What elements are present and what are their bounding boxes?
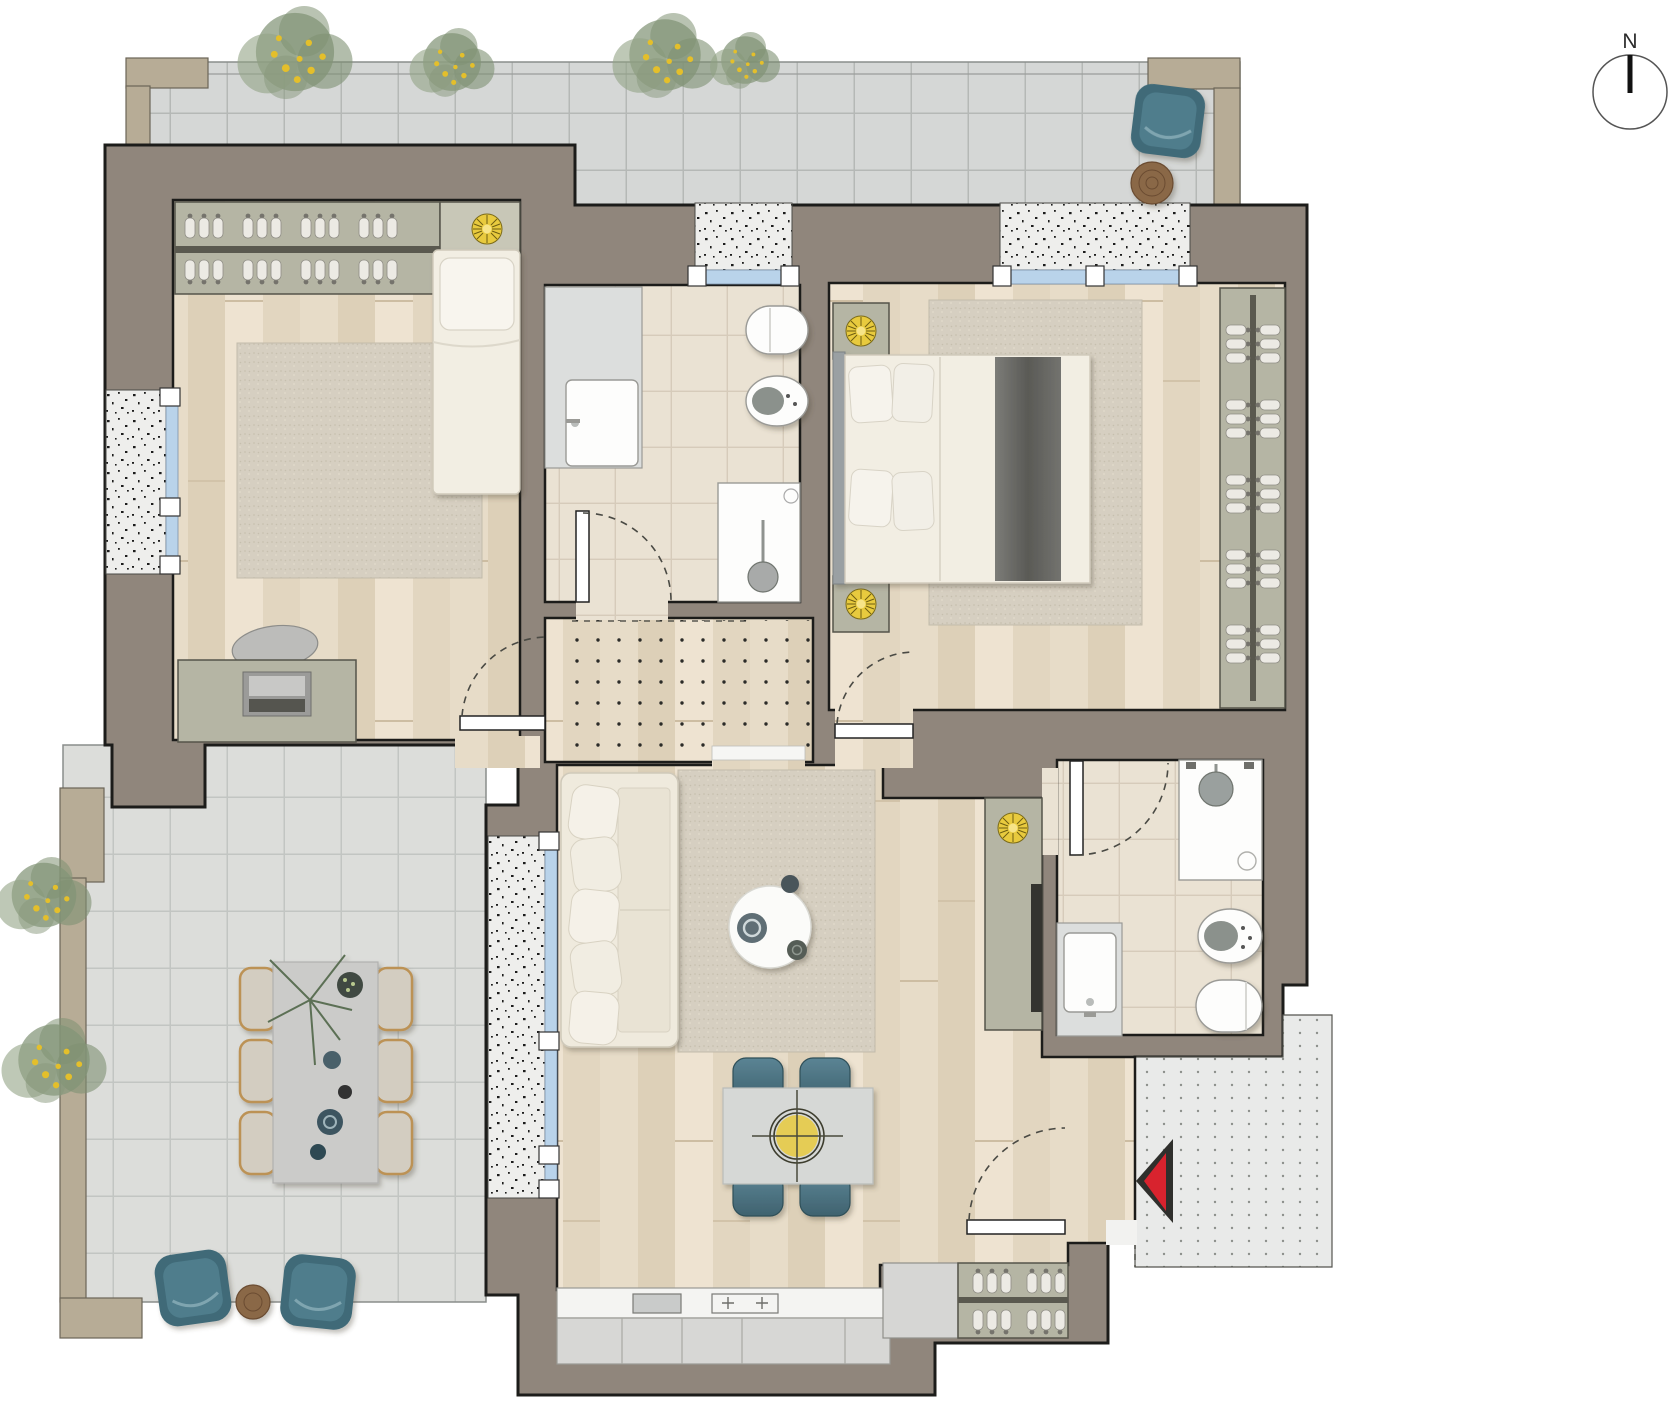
compass-north-label: N	[1622, 30, 1637, 53]
tv-panel	[1031, 884, 1042, 1012]
entry-closet	[883, 1263, 1068, 1338]
hallway-dot-pattern	[566, 620, 813, 752]
nightstand-light-icon	[846, 589, 876, 619]
ceiling-light-icon	[998, 813, 1028, 843]
nightstand-light-icon	[846, 316, 876, 346]
window-living-slider	[488, 832, 559, 1198]
window-bedroom-1	[106, 388, 180, 574]
pillow	[892, 471, 935, 531]
bedroom-1-door-opening	[455, 736, 540, 768]
entry-door-opening	[1106, 1220, 1137, 1245]
double-bed	[833, 352, 1090, 584]
tv-cabinet	[985, 798, 1042, 1030]
kitchen	[557, 1288, 890, 1364]
floor-plan: N	[0, 0, 1671, 1417]
single-bed	[433, 250, 520, 494]
floor-plan-canvas: N	[0, 0, 1671, 1417]
shower-2	[1179, 760, 1262, 880]
bedroom-1-wardrobe	[175, 202, 440, 294]
window-bedroom-2	[993, 203, 1197, 286]
compass: N	[1593, 30, 1667, 129]
headboard	[833, 352, 845, 584]
terrace-top-parapet-right	[1148, 58, 1240, 89]
pillow	[848, 365, 894, 424]
kitchen-cabinets	[557, 1318, 890, 1364]
bathroom-1-door-opening	[576, 600, 668, 620]
sofa	[561, 773, 678, 1047]
ceiling-light-icon	[472, 214, 502, 244]
compass-needle	[1628, 55, 1633, 93]
pillow	[892, 363, 935, 423]
window-bathroom-1	[688, 203, 799, 286]
washbasin-2	[1057, 923, 1122, 1036]
threshold	[712, 746, 805, 760]
shower-1	[718, 483, 800, 602]
kitchen-sink	[633, 1294, 681, 1313]
terrace-top-parapet-left	[126, 58, 208, 88]
toilet	[746, 306, 808, 354]
outdoor-dining	[240, 955, 412, 1183]
side-table	[236, 1285, 270, 1319]
toilet-2	[1196, 980, 1262, 1032]
terrace-left-parapet3	[60, 1298, 142, 1338]
nightstand-top	[833, 303, 889, 359]
sofa-pillows	[566, 783, 623, 1046]
pillow	[848, 469, 894, 528]
washbasin	[566, 380, 638, 466]
terrace-top-parapet-right2	[1214, 88, 1240, 205]
entry-cabinet	[883, 1263, 958, 1338]
bathroom-2-door-opening	[1042, 768, 1058, 855]
terrace-top-side-table	[1131, 162, 1173, 204]
laptop-icon	[243, 672, 311, 716]
bedroom-2-wardrobe	[1220, 288, 1285, 708]
terrace-top-parapet-left2	[126, 86, 150, 152]
terrace-top-lounge-chair	[1129, 82, 1207, 160]
bidet-2	[1198, 909, 1262, 963]
blanket	[995, 357, 1061, 581]
bidet	[746, 376, 808, 426]
